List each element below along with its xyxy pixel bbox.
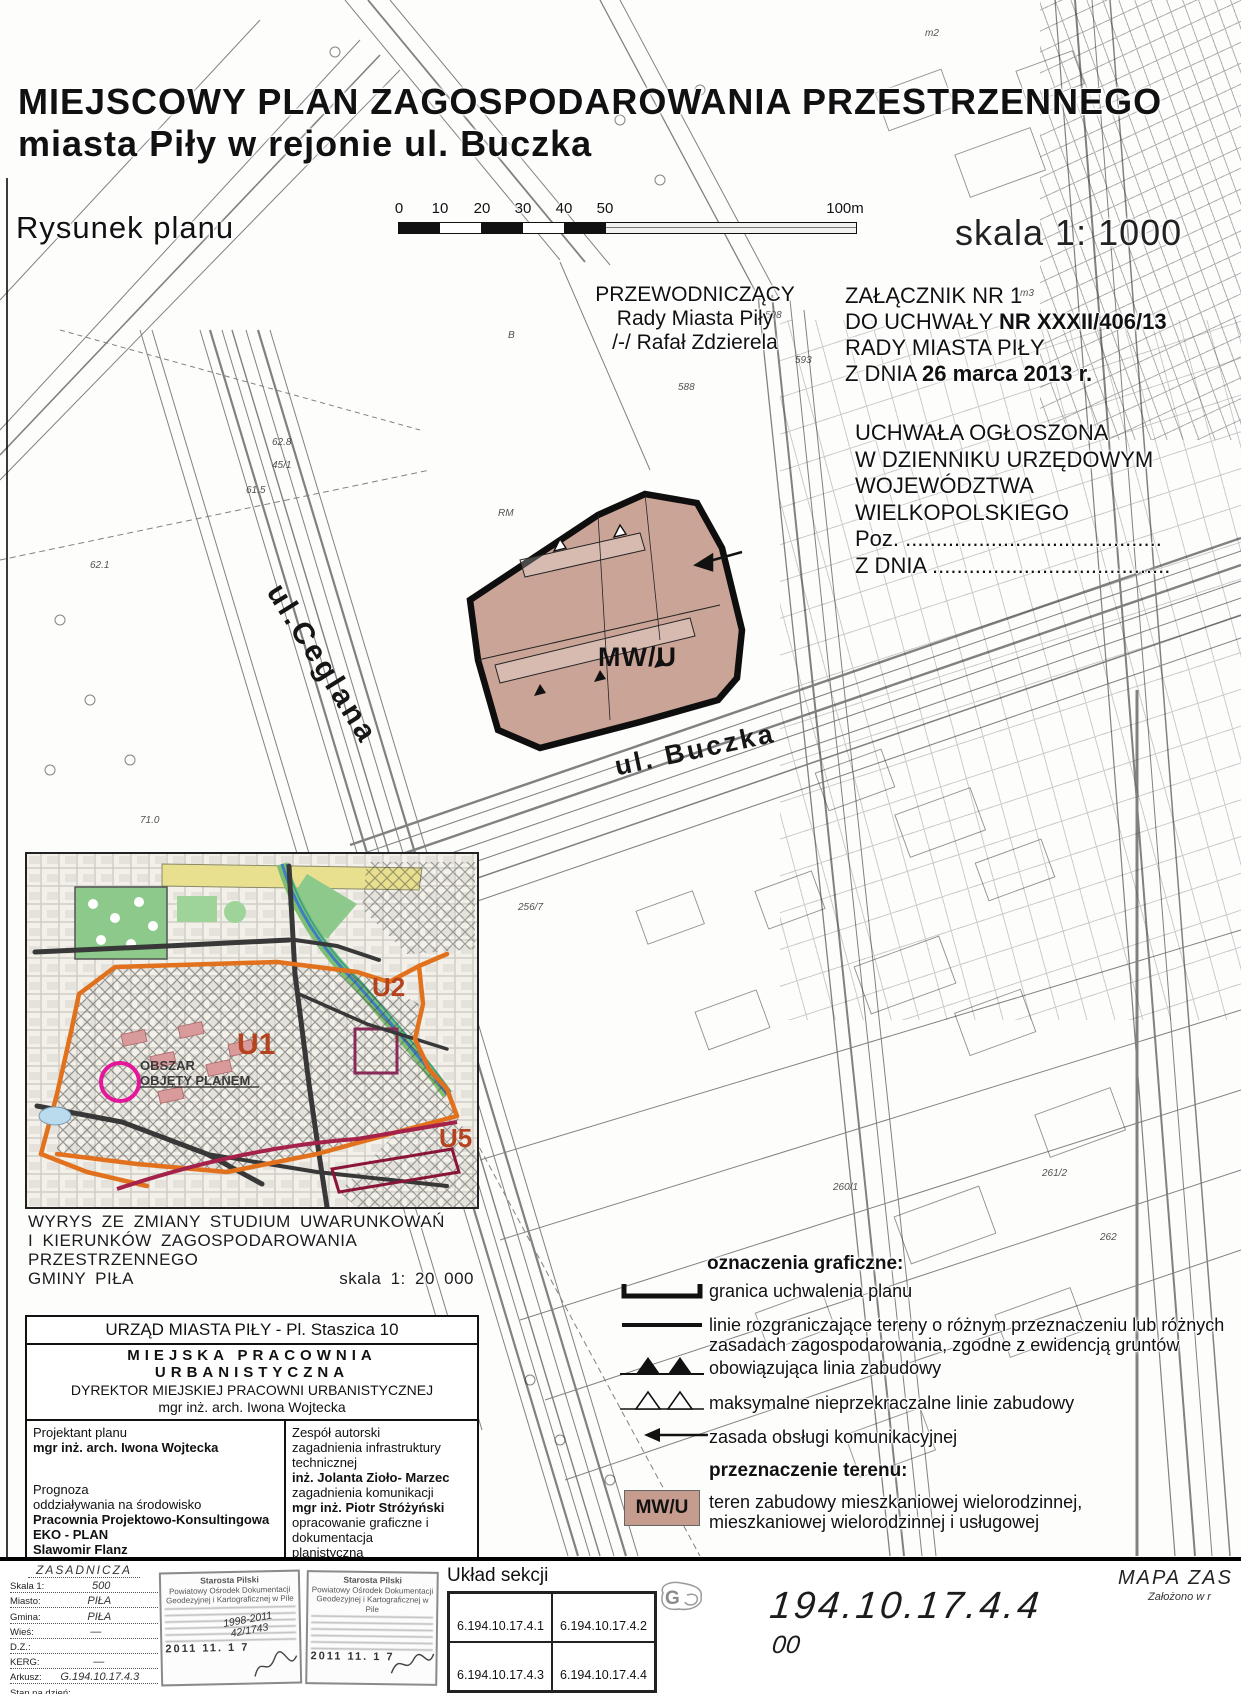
announcement-poz-line: Poz. ...................................… bbox=[855, 526, 1170, 553]
footer-form-value: — bbox=[34, 1626, 158, 1638]
plan-boundary-symbol bbox=[620, 1280, 704, 1302]
footer-form-value: G.194.10.17.4.3 bbox=[42, 1671, 158, 1683]
basemap-spot-label: 62.1 bbox=[90, 560, 109, 571]
attachment-line4: Z DNIA 26 marca 2013 r. bbox=[845, 361, 1167, 387]
footer-form-row: Wieś:— bbox=[10, 1627, 158, 1639]
basemap-spot-label: 260/1 bbox=[833, 1182, 858, 1193]
inset-caption-line1: WYRYS ZE ZMIANY STUDIUM UWARUNKOWAŃ bbox=[28, 1212, 474, 1231]
footer-form-label: Arkusz: bbox=[10, 1672, 42, 1683]
access-arrow-symbol bbox=[635, 1425, 719, 1445]
footer-form-row: Miasto:PIŁA bbox=[10, 1596, 158, 1608]
mandatory-building-line-symbol bbox=[620, 1352, 704, 1378]
eko-plan-line3: Slawomir Flanz bbox=[33, 1542, 278, 1557]
stamp2-fine-print bbox=[311, 1615, 433, 1651]
drawing-label: Rysunek planu bbox=[16, 210, 234, 246]
legend-item1-label: granica uchwalenia planu bbox=[709, 1281, 912, 1301]
mwu-legend-code: MW/U bbox=[636, 1497, 689, 1519]
infra-name: inż. Jolanta Zioło- Marzec bbox=[292, 1470, 471, 1485]
plan-sheet: 61.562.845/162.1588593598m2m3B260/1261/2… bbox=[0, 0, 1241, 1694]
destination-header: przeznaczenie terenu: bbox=[709, 1460, 908, 1482]
scale-tick: 10 bbox=[432, 200, 449, 217]
legend-item5-label: zasada obsługi komunikacyjnej bbox=[709, 1427, 957, 1447]
section-cell: 6.194.10.17.4.4 bbox=[552, 1642, 655, 1691]
section-cell: 6.194.10.17.4.2 bbox=[552, 1593, 655, 1642]
inset-caption-line2: I KIERUNKÓW ZAGOSPODAROWANIA PRZESTRZENN… bbox=[28, 1231, 474, 1269]
attachment-block: ZAŁĄCZNIK NR 1 DO UCHWAŁY NR XXXII/406/1… bbox=[845, 283, 1167, 387]
legend-item4-label: maksymalne nieprzekraczalne linie zabudo… bbox=[709, 1393, 1074, 1413]
chairman-block: PRZEWODNICZĄCY Rady Miasta Piły /-/ Rafa… bbox=[565, 283, 825, 355]
announcement-line2: W DZIENNIKU URZĘDOWYM bbox=[855, 447, 1170, 474]
studium-inset-map: OBSZAR OBJĘTY PLANEM U1 U2 U5 bbox=[25, 852, 479, 1209]
legend-item2-label: linie rozgraniczające tereny o różnym pr… bbox=[709, 1315, 1224, 1355]
studio-name: MIEJSKA PRACOWNIA URBANISTYCZNA bbox=[27, 1347, 477, 1381]
geodesy-stamp-2: Starosta Pilski Powiatowy Ośrodek Dokume… bbox=[305, 1570, 439, 1686]
map-type-handwritten: ZASADNICZA bbox=[28, 1563, 140, 1578]
map-type-note: Założono w r bbox=[1148, 1591, 1211, 1603]
destination-description: teren zabudowy mieszkaniowej wielorodzin… bbox=[709, 1492, 1082, 1532]
page-title-line2: miasta Piły w rejonie ul. Buczka bbox=[18, 124, 592, 164]
stamp2-signature bbox=[387, 1649, 435, 1680]
chairman-name: /-/ Rafał Zdzierela bbox=[565, 331, 825, 355]
mwu-zone-label: MW/U bbox=[598, 642, 677, 673]
scale-end-label: 100m bbox=[826, 200, 864, 217]
komunikacja-name: mgr inż. Piotr Stróżyński bbox=[292, 1500, 471, 1515]
eko-plan-line2: EKO - PLAN bbox=[33, 1527, 278, 1542]
attachment-line2: DO UCHWAŁY NR XXXII/406/13 bbox=[845, 309, 1167, 335]
footer-form-label: KERG: bbox=[10, 1657, 40, 1668]
prognoza-line1: Prognoza bbox=[33, 1482, 278, 1497]
scale-label: skala 1: 1000 bbox=[955, 212, 1182, 254]
footer-form-label: Miasto: bbox=[10, 1596, 41, 1607]
page-title-line1: MIEJSCOWY PLAN ZAGOSPODAROWANIA PRZESTRZ… bbox=[18, 82, 1162, 122]
scale-bar: 0 10 20 30 40 50 100m bbox=[393, 200, 863, 240]
basemap-spot-label: B bbox=[508, 330, 515, 341]
announcement-line4: WIELKOPOLSKIEGO bbox=[855, 500, 1170, 527]
announcement-date-line: Z DNIA .................................… bbox=[855, 553, 1170, 580]
chairman-title: PRZEWODNICZĄCY bbox=[565, 283, 825, 307]
footer-form-value: PIŁA bbox=[41, 1611, 158, 1623]
footer-form-label: Wieś: bbox=[10, 1627, 34, 1638]
logo-letter: G bbox=[665, 1588, 680, 1609]
director-title: DYREKTOR MIEJSKIEJ PRACOWNI URBANISTYCZN… bbox=[27, 1382, 477, 1398]
footer-form-label: Stan na dzień: bbox=[10, 1688, 71, 1694]
footer-form-row: Skala 1:500 bbox=[10, 1581, 158, 1593]
footer-form-label: D.Z.: bbox=[10, 1642, 31, 1653]
footer-form-value: PIŁA bbox=[41, 1595, 158, 1607]
footer-form-row: Stan na dzień: bbox=[10, 1688, 158, 1694]
komunikacja-role: zagadnienia komunikacji bbox=[292, 1485, 471, 1500]
basemap-spot-label: m2 bbox=[925, 28, 939, 39]
section-cell: 6.194.10.17.4.1 bbox=[449, 1593, 552, 1642]
basemap-spot-label: 61.5 bbox=[246, 485, 265, 496]
basemap-spot-label: 62.8 bbox=[272, 437, 291, 448]
attachment-line3: RADY MIASTA PIŁY bbox=[845, 335, 1167, 361]
footer-form-value: — bbox=[40, 1656, 158, 1668]
inset-caption-line3: GMINY PIŁA bbox=[28, 1269, 134, 1288]
basemap-spot-label: 261/2 bbox=[1042, 1168, 1067, 1179]
dividing-line-symbol bbox=[620, 1320, 704, 1330]
footer-form-row: Gmina:PIŁA bbox=[10, 1612, 158, 1624]
attachment-line1: ZAŁĄCZNIK NR 1 bbox=[845, 283, 1167, 309]
basemap-spot-label: 45/1 bbox=[272, 460, 291, 471]
scale-bar-rule bbox=[398, 222, 857, 234]
grafika-role-line1: opracowanie graficzne i dokumentacja bbox=[292, 1515, 471, 1545]
office-studio-block: MIEJSKA PRACOWNIA URBANISTYCZNA DYREKTOR… bbox=[27, 1345, 477, 1421]
basemap-spot-label: 256/7 bbox=[518, 902, 543, 913]
stamp1-line3: Geodezyjnej i Kartograficznej w Pile bbox=[164, 1594, 295, 1606]
geodesy-logo-stamp: G bbox=[657, 1579, 705, 1621]
zone-u2-label: U2 bbox=[372, 972, 405, 1002]
stamp2-line3: Geodezyjnej i Kartograficznej w Pile bbox=[311, 1594, 433, 1615]
scale-tick: 50 bbox=[597, 200, 614, 217]
footer-form-label: Skala 1: bbox=[10, 1581, 44, 1592]
basemap-spot-label: 593 bbox=[795, 355, 812, 366]
basemap-spot-label: 588 bbox=[678, 382, 695, 393]
section-cell: 6.194.10.17.4.3 bbox=[449, 1642, 552, 1691]
scale-tick: 20 bbox=[474, 200, 491, 217]
footer-strip: ZASADNICZA Skala 1:500Miasto:PIŁAGmina:P… bbox=[0, 1557, 1241, 1694]
mwu-legend-swatch: MW/U bbox=[624, 1490, 700, 1526]
map-frame-left bbox=[6, 178, 8, 1557]
infra-role: zagadnienia infrastruktury technicznej bbox=[292, 1440, 471, 1470]
sheet-number-sub: 00 bbox=[770, 1631, 801, 1660]
announcement-block: UCHWAŁA OGŁOSZONA W DZIENNIKU URZĘDOWYM … bbox=[855, 420, 1170, 579]
zone-u5-label: U5 bbox=[439, 1123, 472, 1153]
section-grid: 6.194.10.17.4.1 6.194.10.17.4.2 6.194.10… bbox=[447, 1591, 657, 1693]
geodesy-stamp-1: Starosta Pilski Powiatowy Ośrodek Dokume… bbox=[159, 1570, 302, 1687]
footer-form-value: 500 bbox=[44, 1580, 158, 1592]
sheet-number: 194.10.17.4.4 bbox=[768, 1585, 1044, 1628]
stamp1-signature bbox=[250, 1650, 299, 1681]
zespol-header: Zespół autorski bbox=[292, 1425, 471, 1440]
legend-header: oznaczenia graficzne: bbox=[707, 1253, 903, 1275]
basemap-spot-label: RM bbox=[498, 508, 514, 519]
projektant-name: mgr inż. arch. Iwona Wojtecka bbox=[33, 1440, 278, 1455]
office-header: URZĄD MIASTA PIŁY - Pl. Staszica 10 bbox=[27, 1317, 477, 1345]
basemap-spot-label: 71.0 bbox=[140, 815, 159, 826]
footer-form: ZASADNICZA Skala 1:500Miasto:PIŁAGmina:P… bbox=[10, 1563, 158, 1694]
eko-plan-line1: Pracownia Projektowo-Konsultingowa bbox=[33, 1512, 278, 1527]
section-layout-label: Układ sekcji bbox=[447, 1565, 548, 1587]
studium-inset-drawing: OBSZAR OBJĘTY PLANEM U1 U2 U5 bbox=[27, 854, 477, 1207]
role-projektant: Projektant planu bbox=[33, 1425, 278, 1440]
footer-form-row: D.Z.: bbox=[10, 1642, 158, 1654]
plan-area-label-line1: OBSZAR bbox=[140, 1058, 196, 1073]
scale-tick: 0 bbox=[395, 200, 403, 217]
prognoza-line2: oddziaływania na środowisko bbox=[33, 1497, 278, 1512]
scale-tick: 30 bbox=[515, 200, 532, 217]
footer-form-row: KERG:— bbox=[10, 1657, 158, 1669]
max-building-line-symbol bbox=[620, 1387, 704, 1413]
inset-caption: WYRYS ZE ZMIANY STUDIUM UWARUNKOWAŃ I KI… bbox=[28, 1212, 474, 1288]
legend-item3-label: obowiązująca linia zabudowy bbox=[709, 1358, 941, 1378]
inset-caption-scale: skala 1: 20 000 bbox=[339, 1269, 474, 1288]
scale-tick: 40 bbox=[556, 200, 573, 217]
zone-u1-label: U1 bbox=[237, 1028, 275, 1061]
footer-form-label: Gmina: bbox=[10, 1612, 41, 1623]
plan-area-label-line2: OBJĘTY PLANEM bbox=[140, 1073, 250, 1088]
map-type-title: MAPA ZAS bbox=[1118, 1567, 1233, 1590]
footer-form-rows: Skala 1:500Miasto:PIŁAGmina:PIŁAWieś:—D.… bbox=[10, 1581, 158, 1694]
director-name: mgr inż. arch. Iwona Wojtecka bbox=[27, 1399, 477, 1415]
announcement-line3: WOJEWÓDZTWA bbox=[855, 473, 1170, 500]
chairman-council: Rady Miasta Piły bbox=[565, 307, 825, 331]
footer-form-row: Arkusz:G.194.10.17.4.3 bbox=[10, 1672, 158, 1684]
announcement-line1: UCHWAŁA OGŁOSZONA bbox=[855, 420, 1170, 447]
basemap-spot-label: 262 bbox=[1100, 1232, 1117, 1243]
